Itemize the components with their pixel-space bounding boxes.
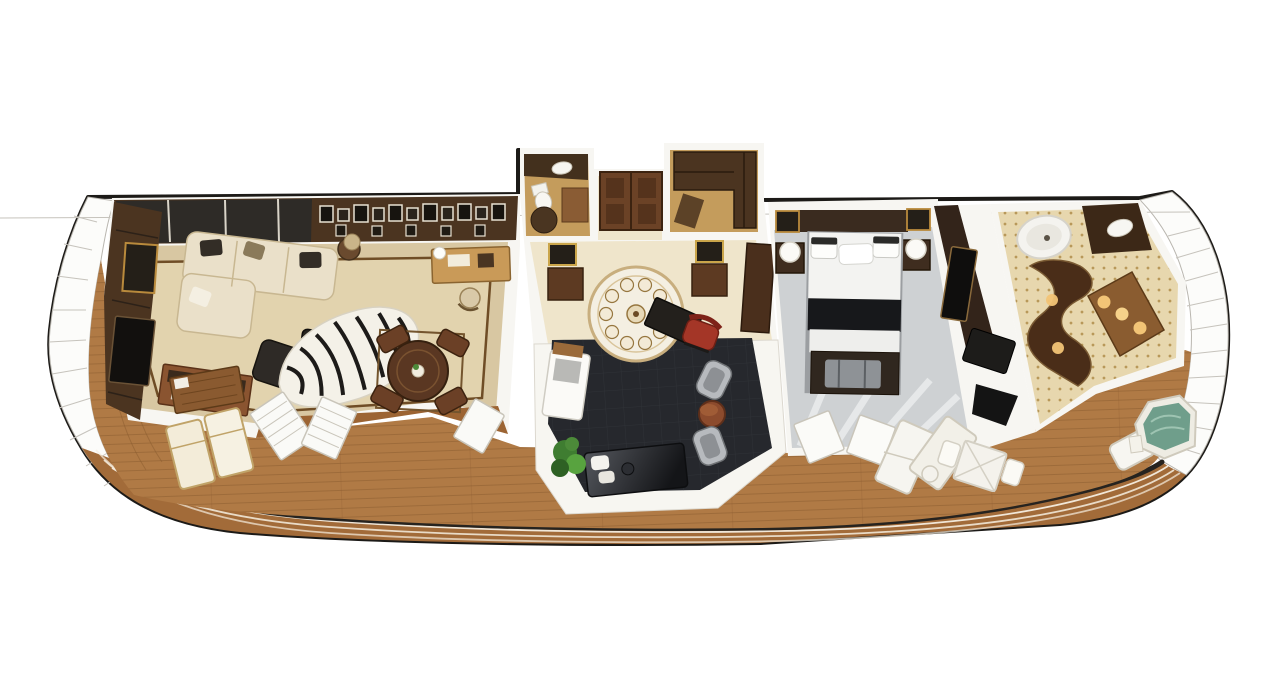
- suite-floorplan-svg: [0, 0, 1280, 696]
- tub-light: [1052, 342, 1064, 354]
- rosette: [600, 308, 613, 321]
- powder-vanity: [562, 188, 588, 222]
- picture-frame: [336, 225, 346, 236]
- plant-leaves: [551, 459, 569, 477]
- picture-frame: [423, 204, 437, 221]
- picture-frame: [476, 207, 487, 219]
- picture-frame: [492, 204, 505, 220]
- vanity-light: [1116, 308, 1129, 321]
- bedroom-art-left: [776, 211, 799, 232]
- door-panel: [606, 204, 624, 224]
- entry-door: [600, 172, 662, 230]
- picture-frame: [458, 204, 471, 220]
- bed-center-pillow: [839, 243, 874, 264]
- desk-papers: [448, 254, 470, 267]
- picture-frame: [354, 205, 368, 222]
- picture-frame: [441, 226, 451, 236]
- daybed-body: [584, 443, 688, 497]
- picture-frame: [373, 208, 384, 221]
- console-table-left: [548, 268, 583, 300]
- rosette: [639, 279, 652, 292]
- sofa-chaise: [176, 273, 257, 340]
- bed-pillow-accent: [873, 236, 899, 243]
- powder-round-table: [531, 207, 557, 233]
- desk-box: [478, 253, 494, 268]
- lounger-side-table: [922, 466, 938, 482]
- plant-leaves: [566, 454, 586, 474]
- picture-frame: [475, 225, 485, 236]
- foyer-art-left: [549, 244, 576, 265]
- white-console-panel: [553, 358, 582, 383]
- vanity-light: [1098, 296, 1111, 309]
- door-panel: [606, 178, 624, 198]
- bed-black-band: [808, 298, 902, 332]
- door-panel: [638, 178, 656, 198]
- picture-frame: [406, 225, 416, 236]
- headboard-ledge: [798, 210, 908, 232]
- picture-frame: [320, 206, 333, 222]
- daybed: [584, 443, 688, 497]
- drum-lamp: [344, 234, 360, 250]
- walk-in-closet: [670, 150, 758, 232]
- tub-light: [1046, 294, 1058, 306]
- drum-table-top: [700, 404, 718, 416]
- rosette: [621, 279, 634, 292]
- picture-frame: [389, 205, 402, 221]
- writing-desk: [431, 245, 510, 284]
- sofa-pillow-dark: [200, 239, 223, 257]
- foyer-wardrobe: [741, 243, 775, 333]
- desk-lamp: [433, 247, 445, 259]
- console-table-right: [692, 264, 727, 296]
- bench-throw: [825, 360, 881, 389]
- vanity-light: [1134, 322, 1147, 335]
- bed-white-band: [809, 329, 899, 354]
- door-panel: [638, 204, 656, 224]
- plant-leaves: [565, 437, 579, 451]
- picture-frame: [338, 209, 349, 221]
- gold-mirror: [122, 243, 157, 293]
- daybed-towel: [598, 470, 615, 484]
- tv-screen: [109, 316, 156, 386]
- picture-frame: [372, 226, 382, 236]
- sofa-pillow-dark: [299, 252, 321, 268]
- bed-pillow-accent: [811, 237, 837, 244]
- bedroom-art-right: [907, 209, 930, 230]
- daybed-towel: [590, 455, 609, 471]
- rosette: [621, 337, 634, 350]
- rosette: [639, 337, 652, 350]
- medallion-center-dot: [633, 311, 639, 317]
- floorplan-render: [0, 0, 1280, 696]
- sphere-lamp-right: [906, 239, 926, 259]
- picture-frame: [442, 207, 453, 220]
- window-mullion: [278, 199, 279, 242]
- rosette: [606, 290, 619, 303]
- shower-drain: [1044, 235, 1050, 241]
- sphere-lamp-left: [780, 242, 800, 262]
- hot-tub-step: [1129, 435, 1143, 453]
- powder-room: [524, 154, 590, 236]
- centerpiece-plant: [413, 364, 419, 370]
- rosette: [606, 326, 619, 339]
- picture-frame: [407, 208, 418, 220]
- king-bed: [805, 231, 904, 395]
- foyer-art-right: [696, 241, 723, 262]
